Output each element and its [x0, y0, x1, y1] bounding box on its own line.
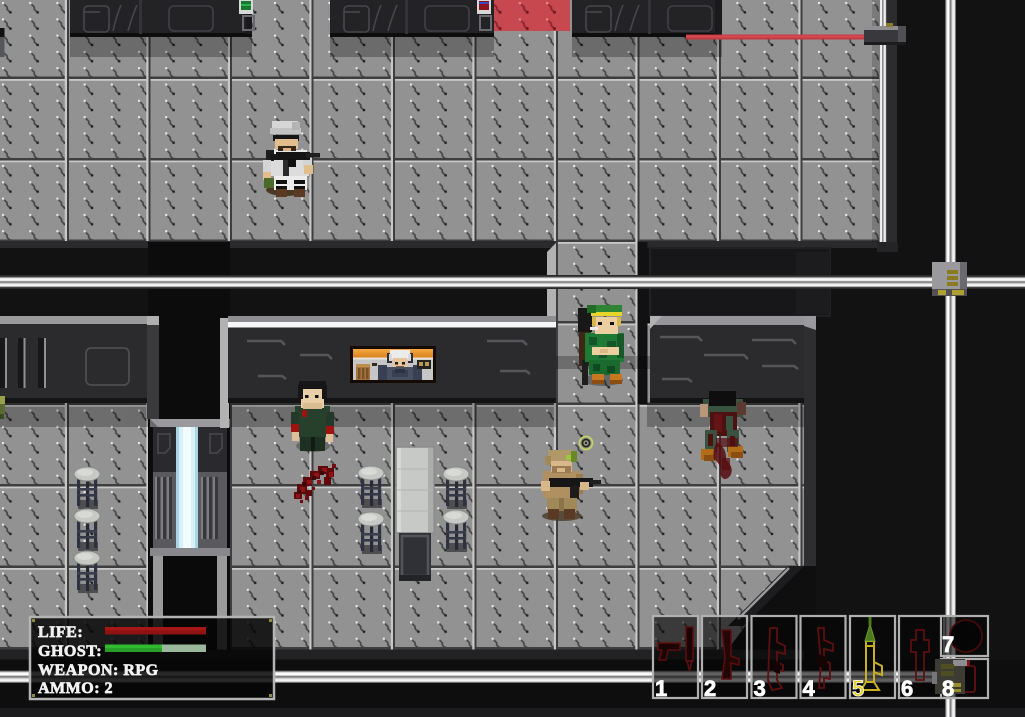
svg-text:AMMO: 2: AMMO: 2 — [38, 680, 113, 697]
svg-text:3: 3 — [754, 676, 766, 701]
svg-text:6: 6 — [901, 676, 913, 701]
svg-text:GHOST:: GHOST: — [38, 643, 102, 660]
svg-text:4: 4 — [803, 676, 816, 701]
svg-text:7: 7 — [942, 632, 954, 657]
svg-text:WEAPON: RPG: WEAPON: RPG — [38, 662, 159, 679]
svg-text:5: 5 — [852, 676, 864, 701]
svg-text:2: 2 — [704, 676, 716, 701]
svg-text:LIFE:: LIFE: — [38, 624, 83, 641]
svg-text:1: 1 — [655, 676, 667, 701]
svg-text:8: 8 — [942, 676, 954, 701]
